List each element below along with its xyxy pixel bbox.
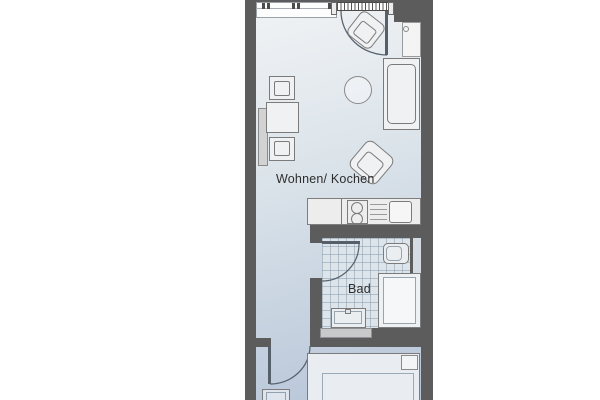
dining-table [266, 102, 299, 133]
faucet-icon [345, 309, 351, 314]
round-side-table [344, 76, 372, 104]
entrance-door-leaf [385, 11, 388, 55]
armchair-entry-seat [352, 20, 377, 45]
bath-door-leaf [322, 241, 360, 244]
room-label-living: Wohnen/ Kochen [276, 172, 374, 186]
window-mullion-icon [292, 3, 295, 9]
floor-plan: Wohnen/ Kochen Bad [0, 0, 600, 400]
counter-divider [341, 198, 342, 225]
wardrobe-knob-icon [403, 26, 409, 32]
room-label-bath: Bad [348, 282, 371, 296]
partition-wall-light [320, 328, 372, 338]
sink-drainer [370, 204, 387, 223]
wall-right [421, 0, 433, 400]
sofa-cushion [387, 64, 416, 124]
dining-chair-top-seat [274, 81, 290, 96]
wall-bath-right [410, 238, 413, 273]
bed-pillow [401, 355, 418, 370]
desk-chair-seat [266, 392, 286, 400]
kitchen-sink [389, 201, 412, 223]
window-mullion-icon [297, 3, 300, 9]
bath-door-swing-arc [320, 242, 362, 284]
stove-burner-icon [351, 213, 363, 225]
door-jamb [331, 2, 337, 15]
wall-kitchen-bath [310, 225, 421, 238]
bed-mattress-line [322, 373, 414, 400]
toilet-bowl [386, 246, 402, 261]
service-shaft [413, 238, 421, 273]
window-mullion-icon [262, 3, 265, 9]
bedroom-door-leaf [268, 346, 271, 384]
window-mullion-icon [267, 3, 270, 9]
dining-chair-bottom-seat [274, 141, 290, 156]
shower-tray [383, 277, 416, 324]
wall-left [245, 0, 256, 400]
